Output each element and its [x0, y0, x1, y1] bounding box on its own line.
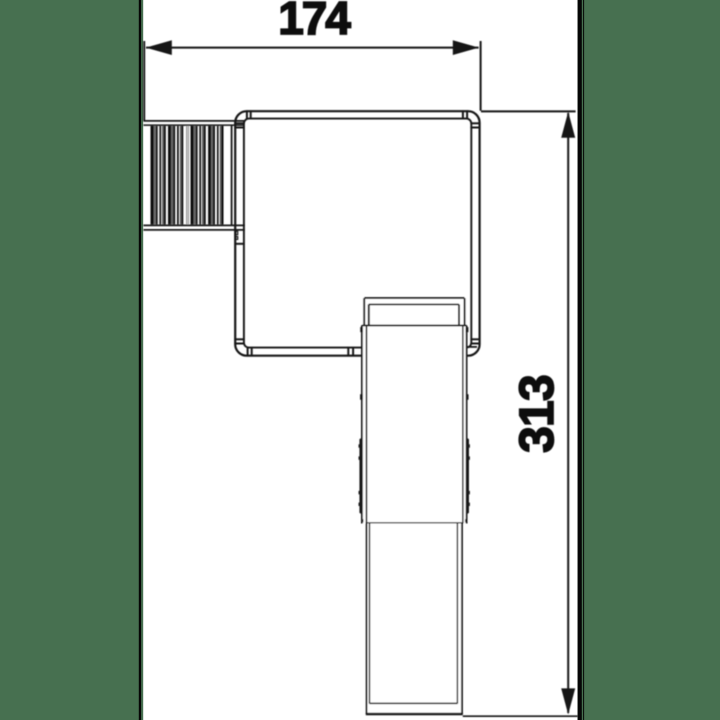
svg-text:313: 313 — [511, 375, 564, 453]
svg-text:174: 174 — [278, 0, 351, 44]
